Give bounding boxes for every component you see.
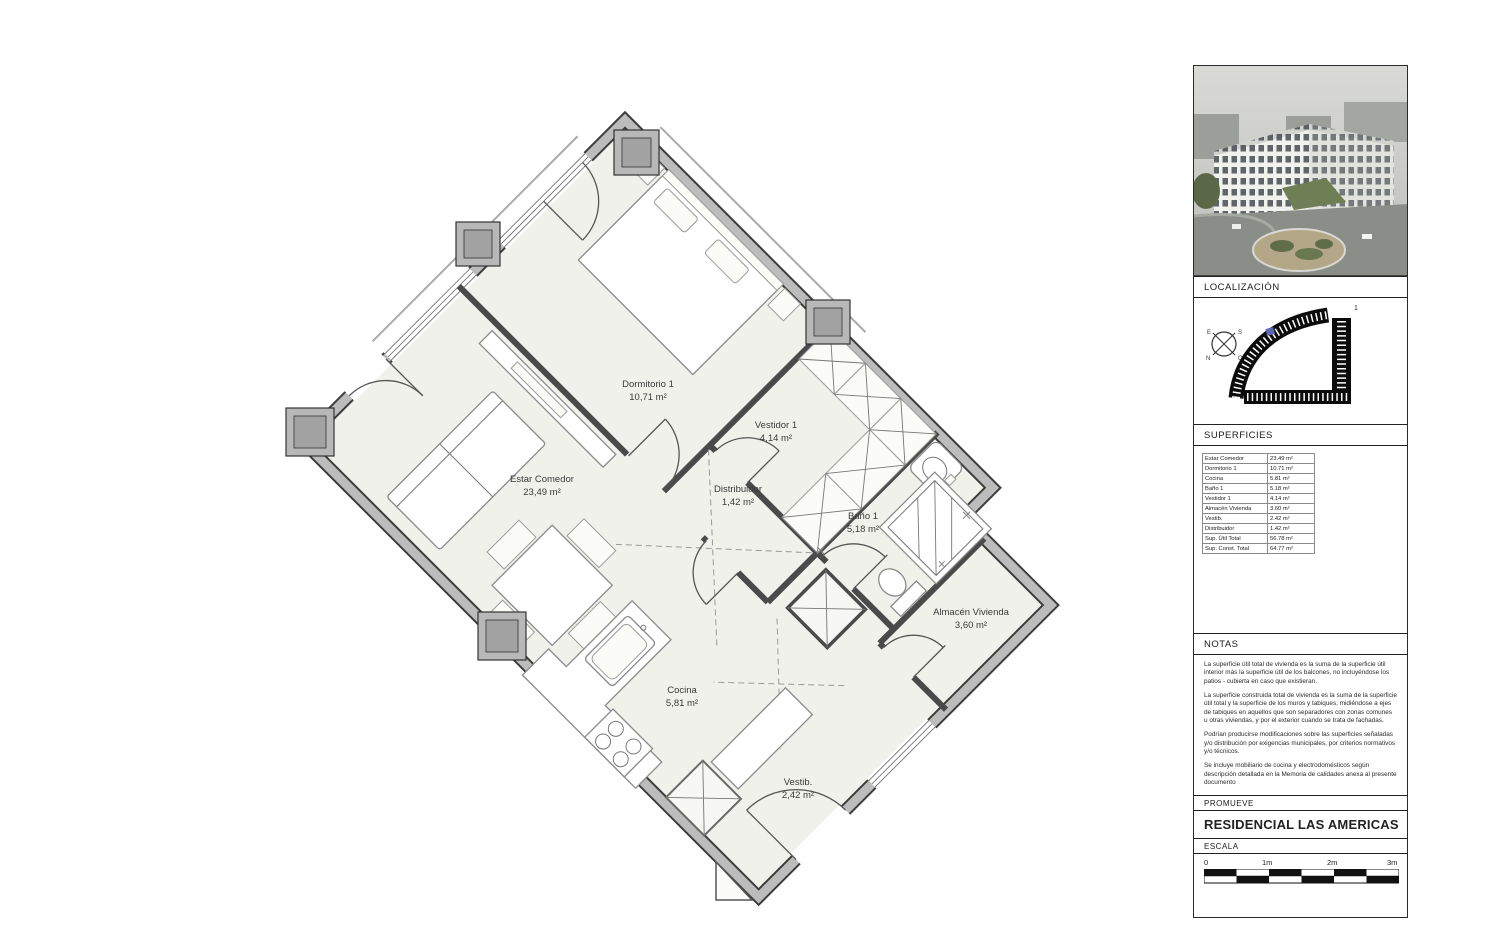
room-label: Vestidor 1	[755, 420, 797, 431]
note-paragraph: La superficie construida total de vivien…	[1204, 692, 1397, 725]
section-header-superficies: SUPERFICIES	[1194, 424, 1407, 446]
section-header-notas: NOTAS	[1194, 633, 1407, 655]
scale-tick: 0	[1204, 858, 1208, 867]
superficies-label: SUPERFICIES	[1204, 430, 1273, 441]
room-label: Dormitorio 1	[622, 379, 674, 390]
drawing-sheet: Dormitorio 1 10,71 m² Vestidor 1 4,14 m²…	[0, 0, 1500, 925]
room-area: 1,42 m²	[722, 497, 754, 508]
table-row: Baño 15.18 m²	[1203, 484, 1315, 494]
table-row: Almacén Vivienda3.60 m²	[1203, 504, 1315, 514]
title-block-panel: LOCALIZACIÓN E S N O	[1193, 65, 1408, 918]
note-paragraph: Se incluye mobiliario de cocina y electr…	[1204, 762, 1397, 787]
table-row: Dormitorio 110.71 m²	[1203, 464, 1315, 474]
scale-tick: 1m	[1262, 858, 1272, 867]
room-label: Vestib.	[784, 777, 813, 788]
table-row: Estar Comedor23.49 m²	[1203, 454, 1315, 464]
room-area: 10,71 m²	[629, 392, 667, 403]
note-paragraph: Podrían producirse modificaciones sobre …	[1204, 731, 1397, 756]
table-row: Sup. Útil Total56.78 m²	[1203, 534, 1315, 544]
room-label: Distribuidor	[714, 484, 762, 495]
scale-bar-area: 0 1m 2m 3m	[1194, 854, 1407, 900]
promoter-name: RESIDENCIAL LAS AMERICAS	[1194, 811, 1407, 838]
svg-text:S: S	[1238, 330, 1242, 336]
section-header-localizacion: LOCALIZACIÓN	[1194, 276, 1407, 298]
areas-table-container: Estar Comedor23.49 m² Dormitorio 110.71 …	[1194, 446, 1407, 633]
escala-label: ESCALA	[1204, 842, 1239, 851]
scale-tick: 3m	[1387, 858, 1397, 867]
notas-label: NOTAS	[1204, 639, 1239, 650]
room-area: 4,14 m²	[760, 433, 792, 444]
table-row: Sup. Const. Total64.77 m²	[1203, 544, 1315, 554]
pillar-nw	[456, 222, 500, 266]
pillar-ne	[806, 300, 850, 344]
building-footprint	[1236, 315, 1351, 404]
room-label: Estar Comedor	[510, 474, 574, 485]
north-marker: 1	[1354, 305, 1358, 312]
building-render-image	[1194, 66, 1407, 276]
section-header-escala: ESCALA	[1194, 838, 1407, 854]
site-plan: E S N O 1	[1194, 298, 1407, 424]
section-header-promueve: PROMUEVE	[1194, 795, 1407, 811]
room-label: Almacén Vivienda	[933, 607, 1010, 618]
floor-plan: Dormitorio 1 10,71 m² Vestidor 1 4,14 m²…	[0, 0, 1185, 925]
scale-tick-labels: 0 1m 2m 3m	[1204, 858, 1397, 869]
localizacion-label: LOCALIZACIÓN	[1204, 282, 1280, 293]
pillar-left	[286, 408, 334, 456]
room-area: 2,42 m²	[782, 790, 814, 801]
notes-text: La superficie útil total de vivienda es …	[1194, 655, 1407, 795]
compass-icon: E S N O	[1206, 330, 1243, 362]
svg-text:E: E	[1207, 330, 1211, 336]
table-row: Vestidor 14.14 m²	[1203, 494, 1315, 504]
scale-tick: 2m	[1327, 858, 1337, 867]
room-area: 3,60 m²	[955, 620, 987, 631]
svg-text:N: N	[1206, 356, 1210, 362]
room-label: Cocina	[667, 685, 697, 696]
pillar-top	[614, 130, 659, 175]
promueve-label: PROMUEVE	[1204, 799, 1254, 808]
note-paragraph: La superficie útil total de vivienda es …	[1204, 661, 1397, 686]
table-row: Vestib.2.42 m²	[1203, 514, 1315, 524]
table-row: Cocina5.81 m²	[1203, 474, 1315, 484]
table-row: Distribuidor1.42 m²	[1203, 524, 1315, 534]
room-area: 5,18 m²	[847, 524, 879, 535]
room-label: Baño 1	[848, 511, 878, 522]
room-area: 5,81 m²	[666, 698, 698, 709]
areas-table: Estar Comedor23.49 m² Dormitorio 110.71 …	[1202, 453, 1315, 554]
room-area: 23,49 m²	[523, 487, 561, 498]
scale-bar	[1204, 869, 1399, 884]
pillar-sw	[478, 612, 526, 660]
